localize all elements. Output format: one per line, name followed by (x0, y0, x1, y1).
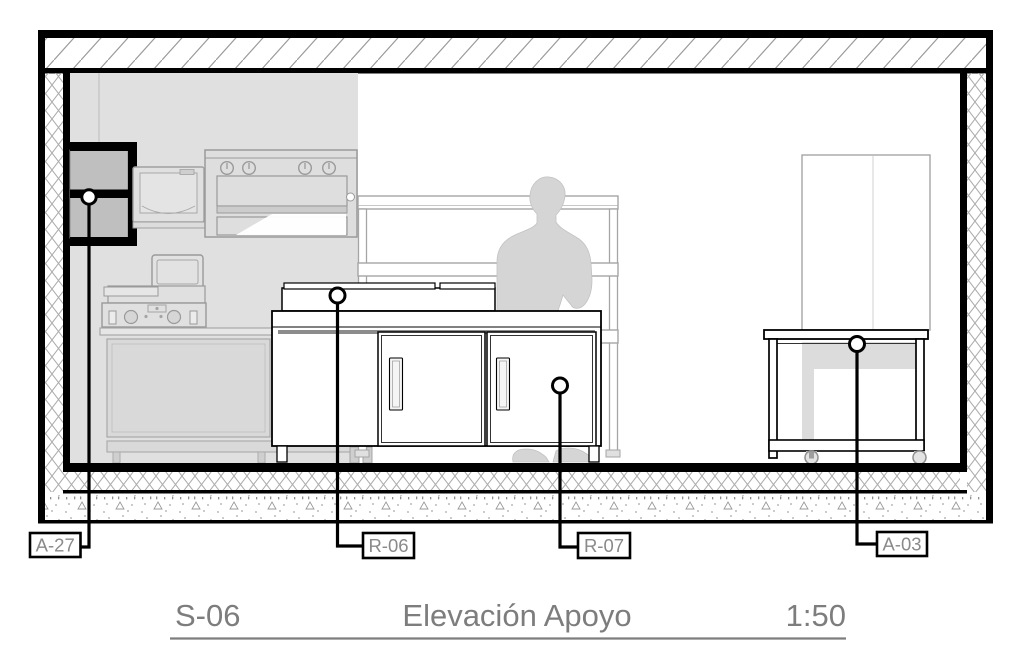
counter-door-right (487, 332, 596, 446)
drawing-title: S-06 Elevación Apoyo 1:50 (170, 598, 846, 639)
callout-r07-label: R-07 (584, 535, 624, 556)
floor-section (63, 463, 967, 494)
drawing-code: S-06 (175, 598, 240, 633)
callout-a03-label: A-03 (882, 534, 921, 555)
elevation-drawing-sheet: A-27 R-06 R-07 A-03 S-06 Elevación Apoyo… (0, 0, 1020, 662)
right-wall (960, 30, 993, 523)
elevation-drawing: A-27 R-06 R-07 A-03 S-06 Elevación Apoyo… (0, 0, 1020, 662)
left-wall (38, 30, 70, 523)
tall-panel (802, 155, 930, 450)
callout-r06-marker (330, 288, 345, 303)
callout-a03-marker (850, 337, 865, 352)
callout-r07-marker (553, 378, 568, 393)
ceiling-section (38, 30, 993, 74)
counter-top-equipment (282, 283, 495, 311)
range-broiler (205, 150, 357, 237)
drawing-scale: 1:50 (786, 598, 846, 633)
counter-door-left (378, 332, 485, 446)
drawing-name: Elevación Apoyo (402, 598, 631, 633)
subfloor-band (38, 495, 993, 524)
callout-a27-marker (82, 190, 96, 204)
callout-r06-label: R-06 (368, 535, 408, 556)
wall-cabinet (70, 142, 137, 246)
callout-a27-label: A-27 (36, 535, 75, 556)
salamander-oven (133, 167, 211, 228)
table-casters (805, 451, 926, 464)
